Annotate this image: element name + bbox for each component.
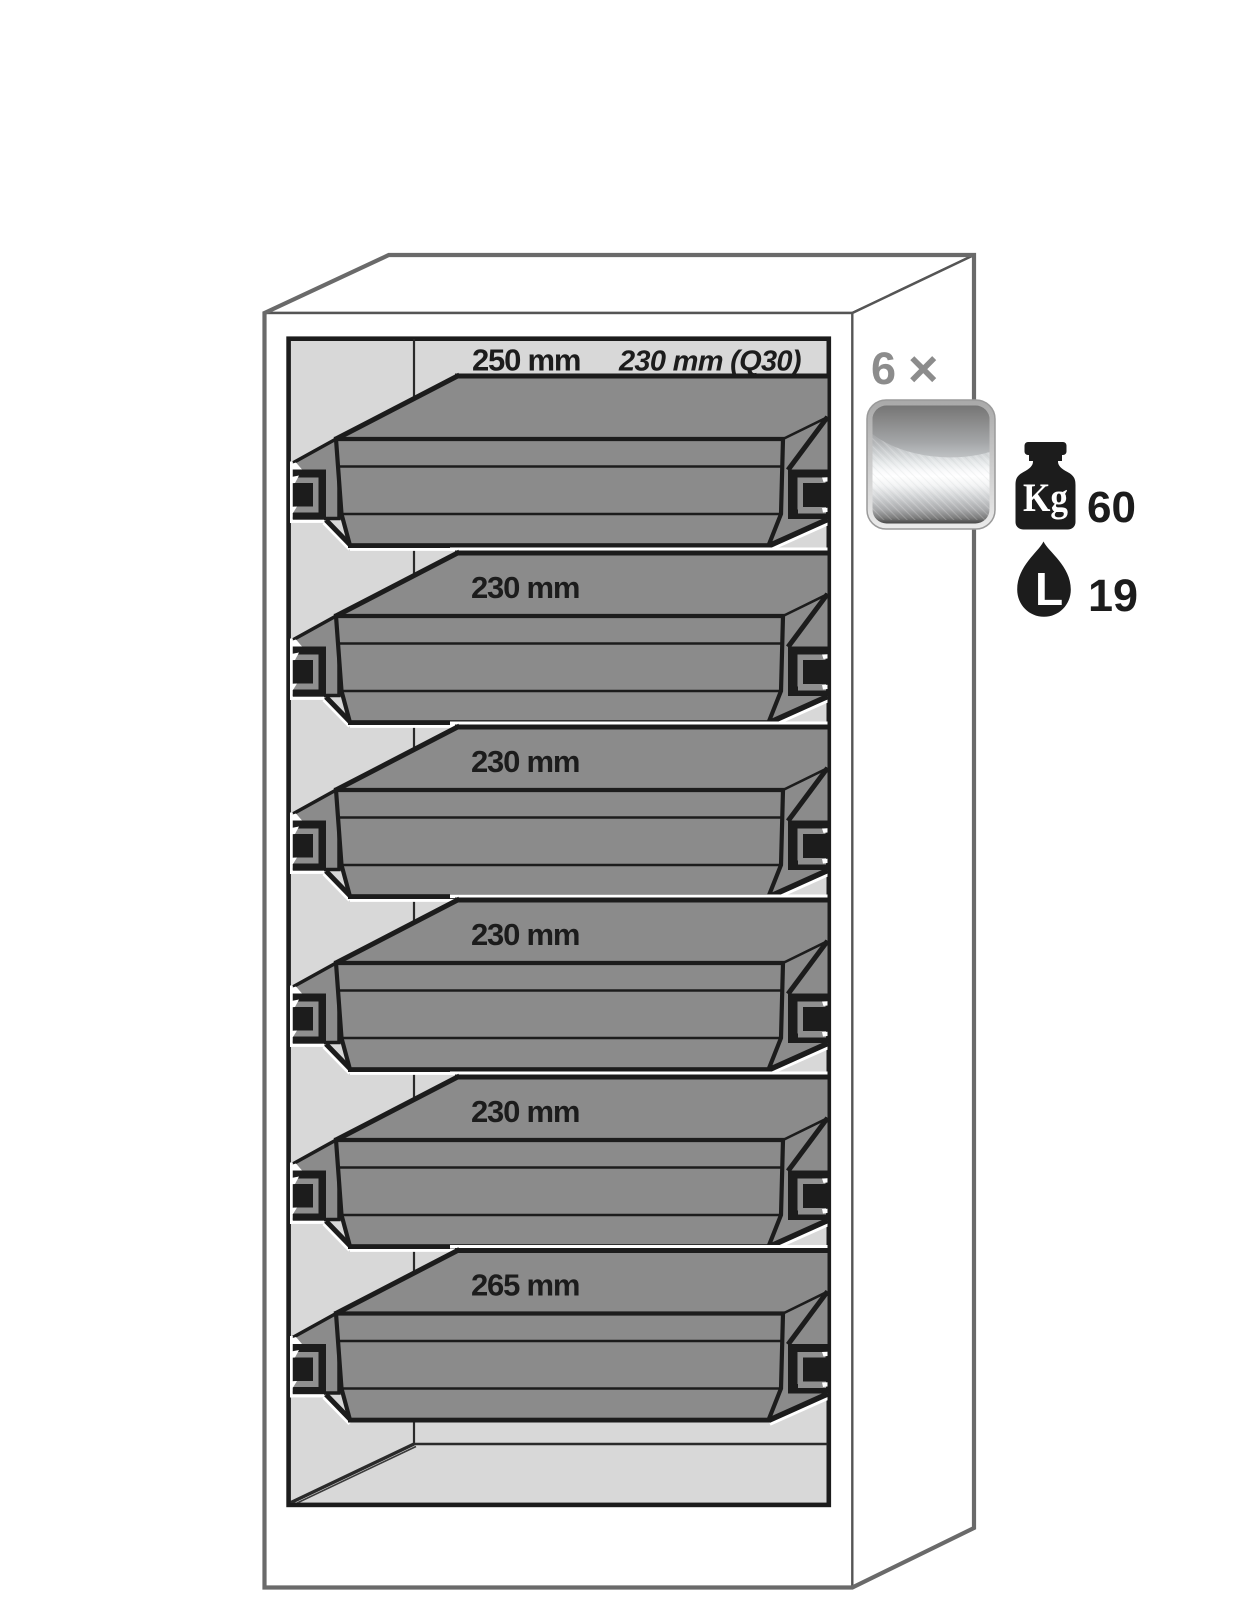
svg-text:230 mm: 230 mm — [471, 917, 579, 952]
svg-text:19: 19 — [1088, 570, 1138, 621]
svg-text:230 mm: 230 mm — [471, 570, 579, 605]
svg-text:60: 60 — [1087, 483, 1136, 532]
svg-text:230 mm (Q30): 230 mm (Q30) — [618, 346, 801, 378]
svg-text:230 mm: 230 mm — [471, 1094, 579, 1129]
svg-text:Kg: Kg — [1023, 475, 1068, 520]
svg-text:L: L — [1035, 563, 1063, 615]
svg-text:230 mm: 230 mm — [471, 744, 579, 779]
svg-text:265 mm: 265 mm — [471, 1268, 579, 1303]
svg-text:250 mm: 250 mm — [472, 343, 580, 378]
